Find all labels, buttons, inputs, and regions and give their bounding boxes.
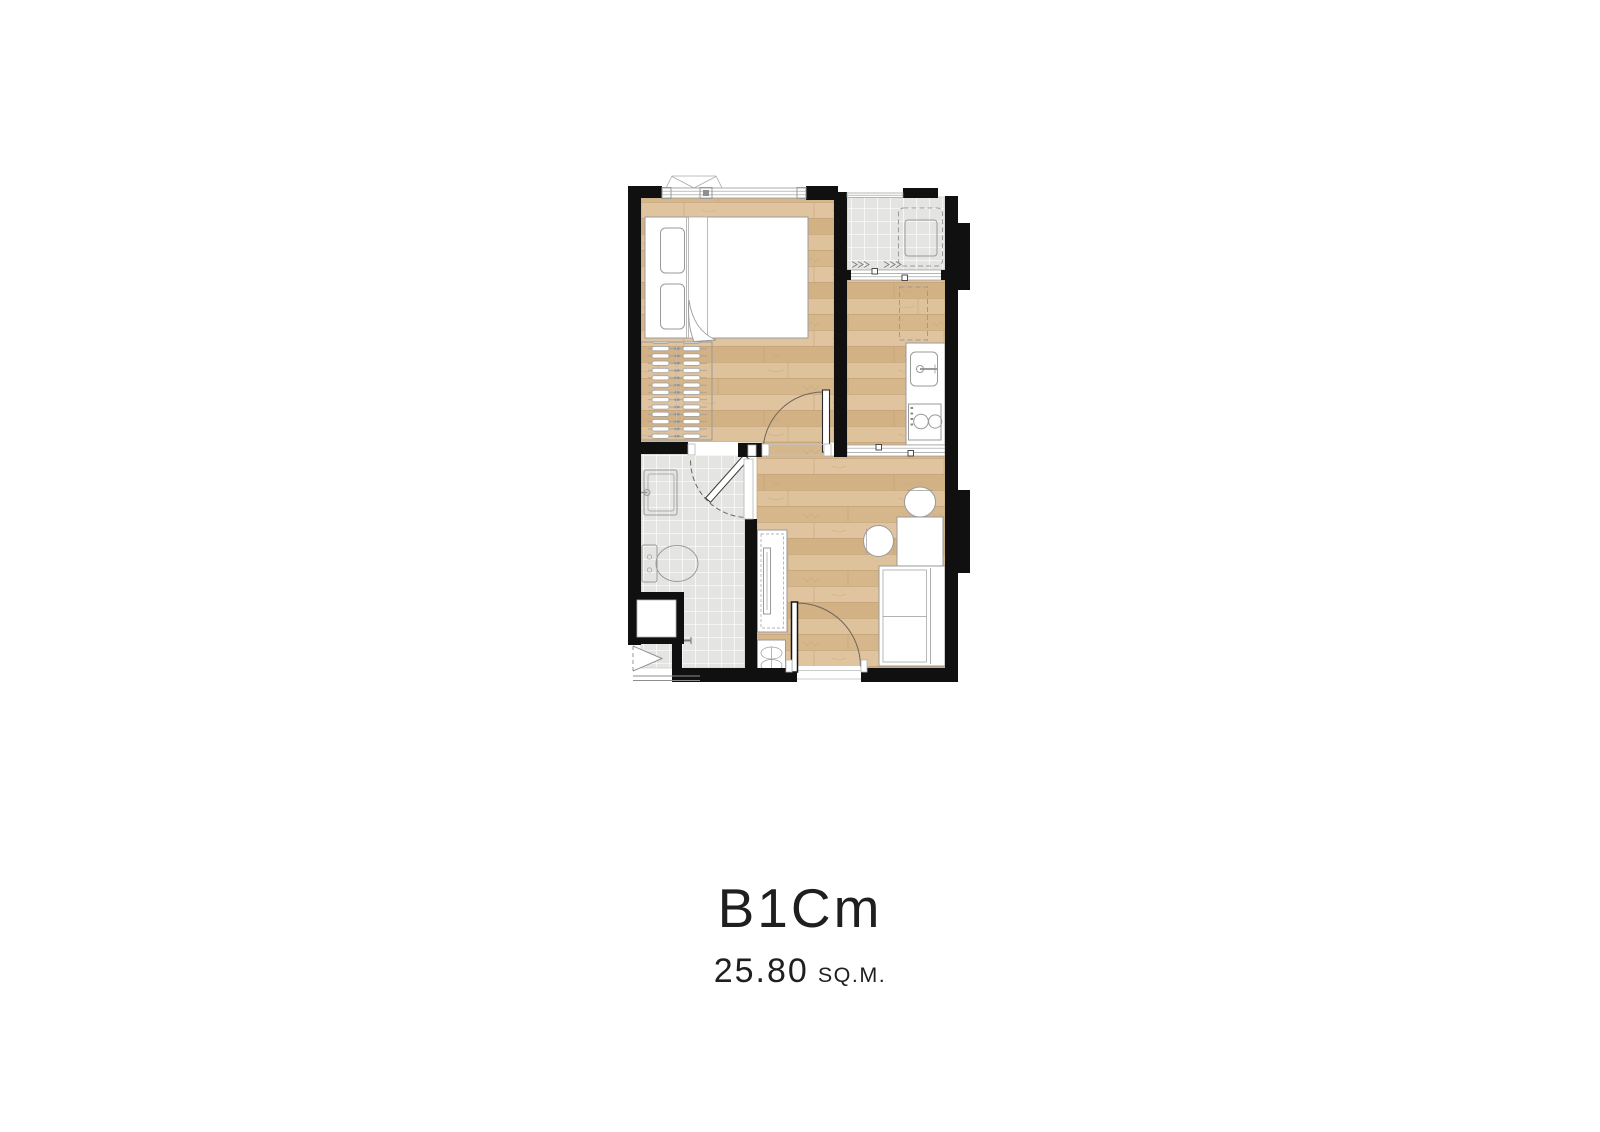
wall-top-mid — [806, 186, 838, 200]
column-right-lower — [945, 490, 970, 573]
stool — [864, 526, 894, 557]
wall-top-left — [628, 186, 662, 198]
door-handle — [902, 275, 908, 281]
table — [897, 517, 943, 568]
shaft-inset — [637, 600, 676, 637]
wall-bathroom-top — [628, 442, 688, 454]
wall-bathroom-right — [745, 519, 757, 682]
door-handle — [872, 269, 878, 275]
stool — [905, 487, 936, 517]
unit-type-label: B1Cm — [0, 878, 1600, 939]
unit-area-label: 25.80SQ.M. — [0, 953, 1600, 990]
area-unit: SQ.M. — [818, 963, 886, 987]
wall-bottom-right — [861, 668, 958, 682]
door-handle — [908, 451, 914, 457]
kitchen-living-sliding-door — [847, 445, 945, 457]
balcony-edge — [847, 193, 903, 198]
bed — [645, 217, 808, 342]
bedroom-window — [662, 176, 806, 199]
balcony-sliding-door — [847, 269, 945, 281]
floor-plan-drawing — [618, 170, 982, 690]
wall-bottom-left — [672, 668, 797, 682]
door-leaf — [823, 390, 830, 452]
bathroom-door-threshold — [688, 442, 738, 455]
wall-bedroom-kitchen — [834, 192, 847, 457]
tv-console — [758, 530, 788, 632]
wardrobe — [641, 342, 712, 440]
floor-plan-figure: B1Cm 25.80SQ.M. — [0, 0, 1600, 1132]
shoe-cabinet — [758, 640, 786, 672]
door-handle — [876, 445, 882, 451]
kitchen-counter — [906, 343, 945, 445]
wall-balcony-top — [903, 188, 938, 198]
wall-left — [628, 186, 641, 645]
bathroom-door-frame — [744, 459, 753, 519]
area-value: 25.80 — [714, 952, 809, 990]
column-right-upper — [945, 223, 970, 290]
sofa — [879, 566, 945, 666]
door-leaf — [792, 602, 798, 672]
